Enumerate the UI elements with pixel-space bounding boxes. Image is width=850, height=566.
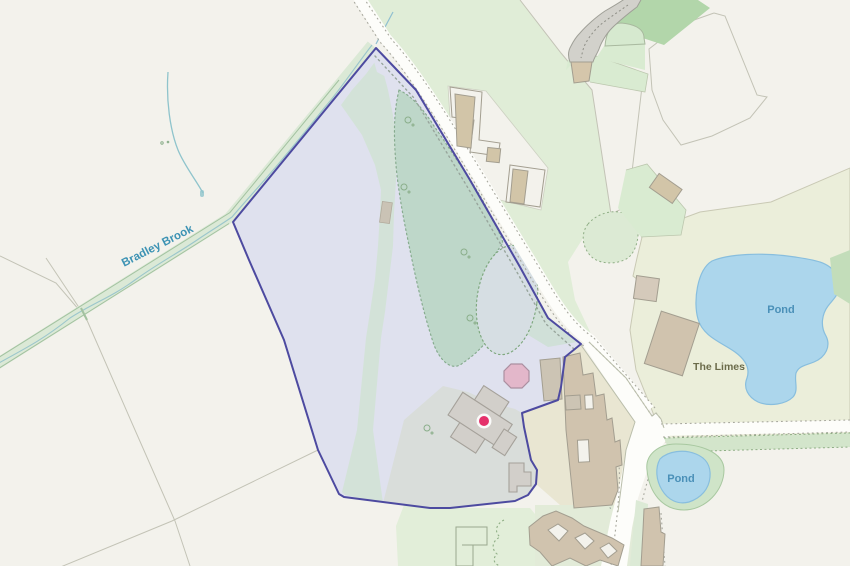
svg-text:Pond: Pond xyxy=(767,304,795,316)
svg-text:Pond: Pond xyxy=(667,473,695,485)
svg-text:The Limes: The Limes xyxy=(693,361,745,373)
